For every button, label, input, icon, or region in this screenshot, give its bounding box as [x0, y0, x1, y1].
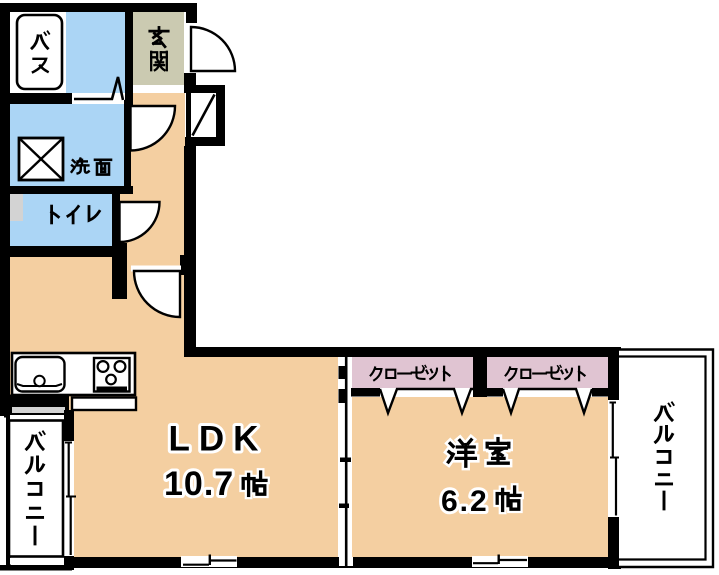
- svg-text:6.2: 6.2: [441, 485, 489, 518]
- svg-text:10.7: 10.7: [164, 465, 234, 503]
- svg-text:LDK: LDK: [169, 420, 268, 459]
